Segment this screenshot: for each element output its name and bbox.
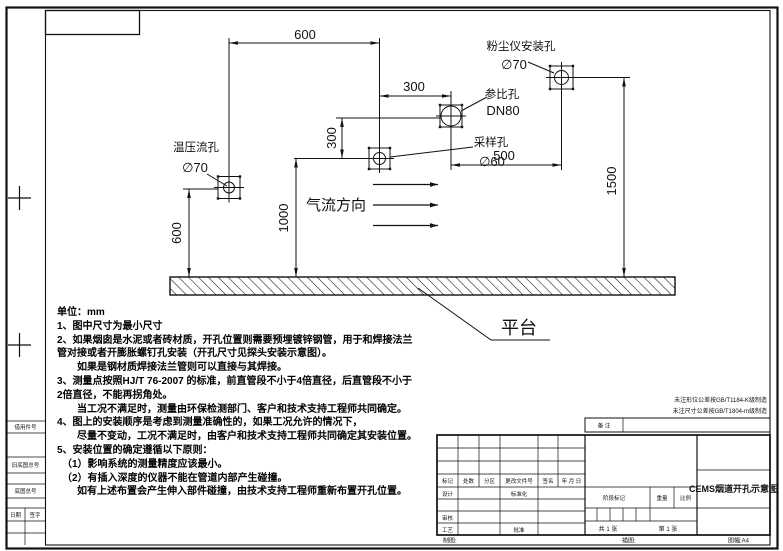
note-line: 如有上述布置会产生伸入部件碰撞，由技术支持工程师重新布置开孔位置。 [57,485,507,499]
sheet-total: 共 1 张 [599,525,618,533]
dim-1500: 1500 [604,167,619,196]
hole-temp-pressure-flow-size: ∅70 [182,160,208,175]
hole-temp-pressure-flow-label: 温压流孔 [173,140,219,154]
hole-reference-label: 参比孔 [485,87,520,101]
tolerance-note-1: 未注形位公差按GB/T1184-K级制造 [674,396,767,404]
draft-label: 制图: [443,537,457,545]
hole-reference-size: DN80 [486,103,519,118]
dimensions: 600 300 300 500 1000 600 1500 [169,27,624,277]
note-line: 尽量不变动，工况不满足时，由客户和技术支持工程师共同确定其安装位置。 [57,430,507,444]
leader-line [461,97,487,111]
border-field-2: 旧底图总号 [12,461,40,469]
signature-label: 签名 [542,477,553,485]
stage-mark-label: 阶段标记 [603,494,626,502]
dim-300-horizontal: 300 [403,79,425,94]
platform-bar [170,277,675,295]
note-line: 如果是钢材质焊接法兰管则可以直接与其焊接。 [57,361,507,375]
note-line: 当工况不满足时，测量由环保检测部门、客户和技术支持工程师共同确定。 [57,403,507,417]
hole-dust-meter-size: ∅70 [501,57,527,72]
note-line: （2）有插入深度的仪器不能在管道内部产生碰撞。 [57,472,507,486]
remark-box [585,418,770,432]
hole-reference: 参比孔 DN80 [436,87,520,131]
process-label: 工艺 [442,527,454,534]
note-line: 4、图上的安装顺序是考虑到测量准确性的，如果工况允许的情况下， [57,416,507,430]
tolerance-note-2: 未注尺寸公差按GB/T1804-m级制造 [673,407,767,415]
note-line: 3、测量点按照HJ/T 76-2007 的标准，前直管段不小于4倍直径，后直管段… [57,375,507,389]
sheet-number: 第 1 张 [659,525,678,533]
dim-600-vertical: 600 [169,222,184,244]
note-line: 管对接或者开膨胀螺钉孔安装（开孔尺寸见探头安装示意图）。 [57,347,507,361]
general-notes: 单位：mm 1、图中尺寸为最小尺寸 2、如果烟囱是水泥或者砖材质，开孔位置则需要… [57,306,507,499]
flow-direction-label: 气流方向 [306,197,366,214]
note-line: 5、安装位置的确定遵循以下原则： [57,444,507,458]
hole-sampling-size: ∅60 [479,154,505,169]
dim-300-vertical: 300 [324,127,339,149]
title-block-section-dividers [585,435,697,535]
border-field-date: 日期 [10,512,22,519]
date-label: 年 月 日 [562,477,582,485]
notes-unit-line: 单位：mm [57,306,507,320]
trace-label: 描图: [622,537,636,545]
weight-label: 重量 [656,494,668,502]
drawing-sheet: 借用件号 旧底图总号 底图总号 日期 签字 600 300 300 500 10… [0,0,783,551]
note-line: （1）影响系统的测量精度应该最小。 [57,458,507,472]
leader-line [390,147,473,157]
note-line: 1、图中尺寸为最小尺寸 [57,320,507,334]
border-field-grid: 借用件号 旧底图总号 底图总号 日期 签字 [6,421,45,545]
corner-reference-box [46,11,140,35]
centering-marks [8,186,31,357]
dim-600-top: 600 [294,27,316,42]
paper-size-label: 图幅:A4 [728,537,750,545]
tolerance-notes: 未注形位公差按GB/T1184-K级制造 未注尺寸公差按GB/T1804-m级制… [585,396,770,432]
border-field-3: 底图总号 [14,487,37,495]
scale-label: 比例 [680,494,692,502]
check-label: 审核 [442,514,454,522]
note-line: 2倍直径，不能再拐角处。 [57,389,507,403]
hole-dust-meter: 粉尘仪安装孔 ∅70 [487,39,578,93]
approve-label: 批准 [513,526,525,534]
hole-temp-pressure-flow: 温压流孔 ∅70 [173,140,244,203]
doc-no-label: 更改文件号 [505,477,533,485]
note-line: 2、如果烟囱是水泥或者砖材质，开孔位置则需要预埋镀锌钢管，用于和焊接法兰 [57,334,507,348]
extension-lines [183,38,630,189]
standardization-label: 标准化 [511,490,528,498]
air-flow: 气流方向 [306,185,438,226]
dim-1000: 1000 [276,204,291,233]
hole-dust-meter-label: 粉尘仪安装孔 [487,39,556,53]
hole-sampling-label: 采样孔 [474,135,509,149]
drawing-title: CEMS烟道开孔示意图 [689,483,778,494]
border-field-1: 借用件号 [14,423,37,431]
hole-sampling: 采样孔 ∅60 [365,135,509,173]
remark-label: 备 注 [598,422,611,430]
border-field-sign: 签字 [29,511,41,519]
